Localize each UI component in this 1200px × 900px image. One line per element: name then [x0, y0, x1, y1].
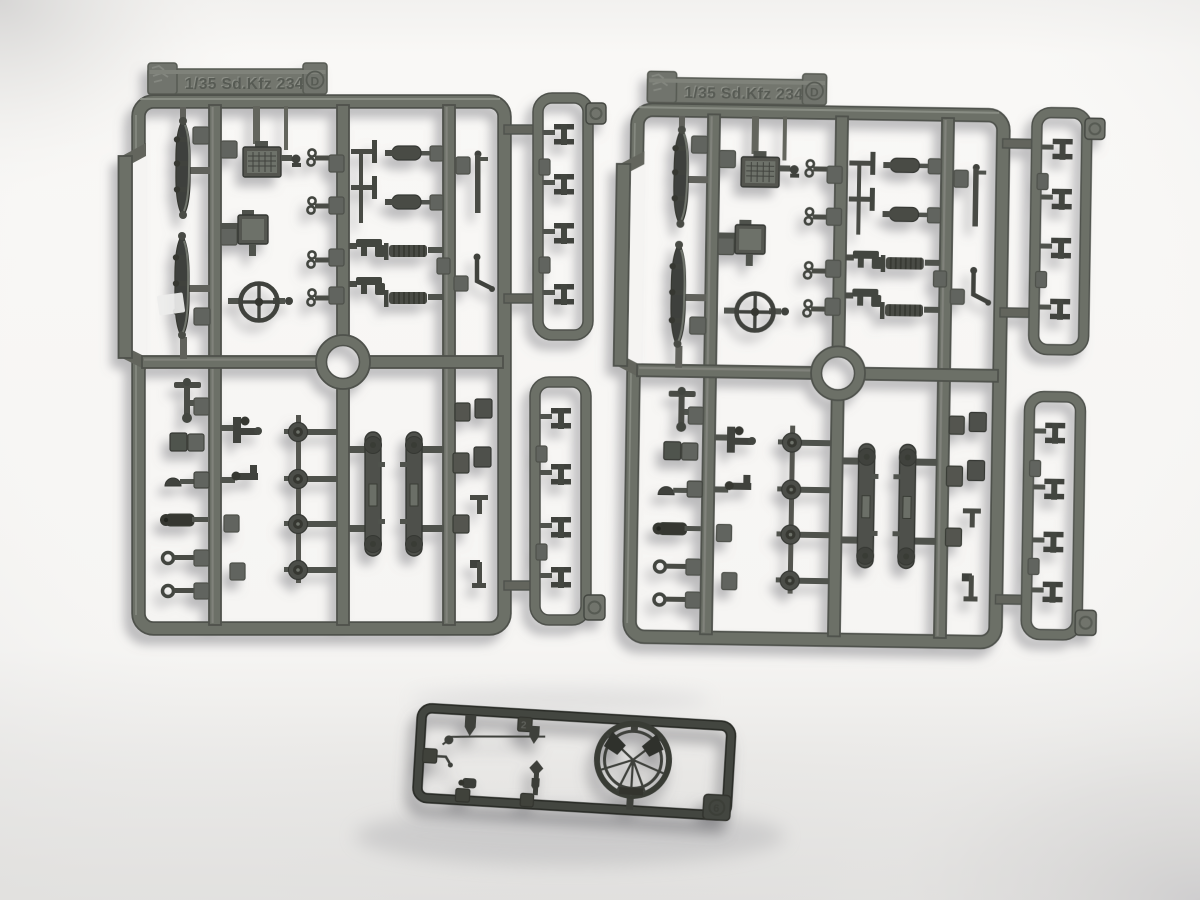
- svg-text:2: 2: [521, 720, 528, 731]
- svg-text:6: 6: [713, 803, 720, 815]
